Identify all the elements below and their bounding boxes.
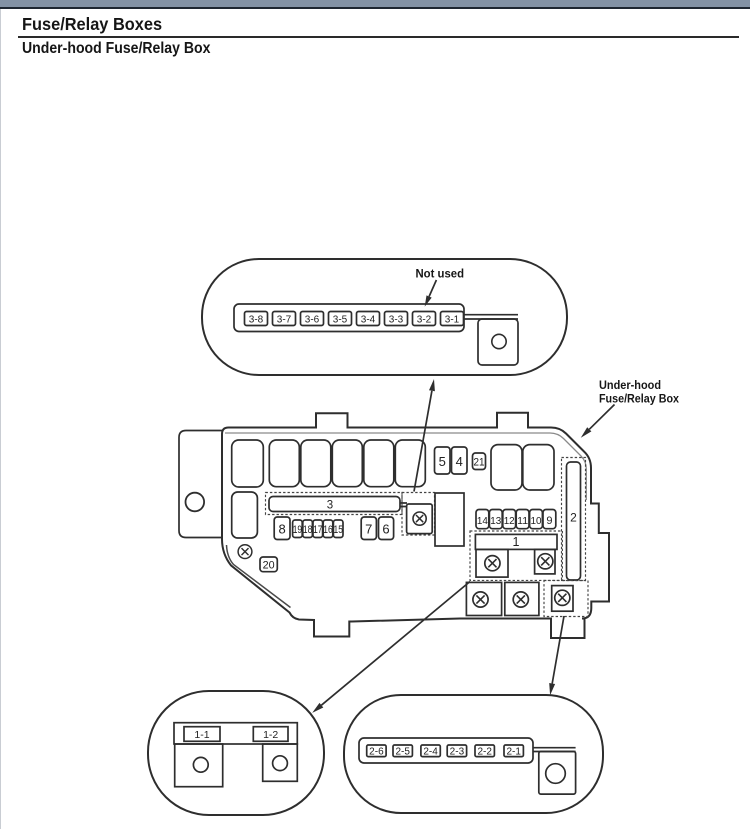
svg-text:Fuse/Relay Box: Fuse/Relay Box xyxy=(599,392,679,406)
svg-text:1-1: 1-1 xyxy=(194,729,209,741)
svg-text:12: 12 xyxy=(504,515,515,527)
svg-text:5: 5 xyxy=(439,454,446,469)
svg-text:2: 2 xyxy=(570,511,577,525)
svg-text:2-6: 2-6 xyxy=(369,747,384,758)
svg-text:16: 16 xyxy=(323,524,332,536)
svg-text:19: 19 xyxy=(293,524,302,536)
svg-text:14: 14 xyxy=(477,515,488,527)
svg-text:1-2: 1-2 xyxy=(263,729,278,741)
svg-text:3-4: 3-4 xyxy=(361,315,376,326)
svg-text:Under-hood: Under-hood xyxy=(599,378,661,392)
svg-text:3: 3 xyxy=(327,500,333,512)
svg-text:2-3: 2-3 xyxy=(450,747,465,758)
svg-text:15: 15 xyxy=(334,524,343,536)
svg-text:4: 4 xyxy=(456,454,463,469)
svg-text:2-4: 2-4 xyxy=(423,747,438,758)
svg-text:3-8: 3-8 xyxy=(249,315,264,326)
svg-text:3-7: 3-7 xyxy=(277,315,292,326)
svg-text:3-2: 3-2 xyxy=(417,315,432,326)
svg-text:11: 11 xyxy=(517,515,528,527)
svg-text:9: 9 xyxy=(546,515,552,527)
svg-text:13: 13 xyxy=(490,515,501,527)
svg-text:10: 10 xyxy=(531,515,542,527)
svg-text:6: 6 xyxy=(382,522,389,537)
svg-text:3-1: 3-1 xyxy=(445,315,460,326)
svg-text:2-5: 2-5 xyxy=(395,747,410,758)
svg-text:1: 1 xyxy=(513,535,520,549)
svg-text:2-2: 2-2 xyxy=(477,747,492,758)
svg-text:3-6: 3-6 xyxy=(305,315,320,326)
svg-text:7: 7 xyxy=(365,522,372,537)
svg-text:2-1: 2-1 xyxy=(506,747,521,758)
svg-text:3-5: 3-5 xyxy=(333,315,348,326)
svg-text:17: 17 xyxy=(313,524,322,536)
svg-text:20: 20 xyxy=(263,560,275,572)
svg-text:8: 8 xyxy=(278,522,285,537)
svg-text:Not used: Not used xyxy=(416,267,465,281)
svg-text:21: 21 xyxy=(474,457,485,469)
svg-text:3-3: 3-3 xyxy=(389,315,404,326)
svg-text:18: 18 xyxy=(303,524,312,536)
